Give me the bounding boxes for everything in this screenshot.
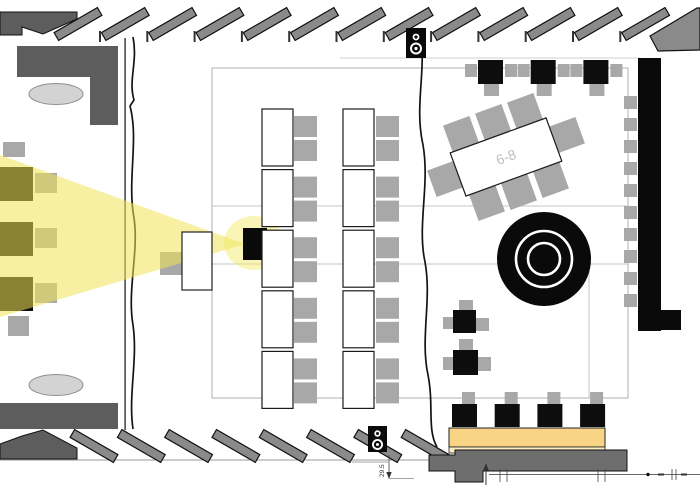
louver-post — [241, 31, 243, 42]
window-louver-top — [243, 8, 291, 41]
cocktail-chair-bottom[interactable] — [484, 84, 499, 96]
window-louver-top — [291, 8, 339, 41]
banquet-chair[interactable] — [294, 382, 317, 403]
banquet-chair[interactable] — [376, 116, 399, 137]
banquet-chair[interactable] — [376, 261, 399, 282]
dim-arrow-down — [386, 472, 391, 479]
banquet-table[interactable] — [343, 230, 374, 287]
cocktail-table[interactable] — [531, 60, 556, 84]
louver-post — [288, 31, 290, 42]
banquet-chair[interactable] — [294, 322, 317, 343]
cocktail-chair-right[interactable] — [558, 64, 570, 77]
louver-post — [525, 31, 527, 42]
banquet-table[interactable] — [343, 351, 374, 408]
banquet-table[interactable] — [262, 291, 293, 348]
banquet-table[interactable] — [343, 109, 374, 166]
banquet-table[interactable] — [262, 109, 293, 166]
lounge-table-bottom[interactable] — [29, 375, 83, 396]
banquet-table[interactable] — [262, 230, 293, 287]
wall-bottom-right — [429, 450, 627, 482]
cocktail-chair-left[interactable] — [570, 64, 582, 77]
window-louver-top — [527, 8, 575, 41]
banquet-chair[interactable] — [376, 382, 399, 403]
banquet-chair[interactable] — [376, 201, 399, 222]
banquet-chair[interactable] — [294, 261, 317, 282]
side-table-chair-right[interactable] — [476, 318, 489, 331]
window-louver-bottom — [212, 430, 260, 463]
louver-post — [477, 31, 479, 42]
banquet-chair[interactable] — [376, 298, 399, 319]
window-louver-bottom — [307, 430, 355, 463]
side-table[interactable] — [453, 310, 476, 333]
banquet-chair[interactable] — [294, 201, 317, 222]
bar-chair[interactable] — [624, 228, 637, 241]
cocktail-chair-left[interactable] — [518, 64, 530, 77]
banquet-chair[interactable] — [376, 237, 399, 258]
bar-back-chair[interactable] — [590, 392, 603, 404]
stage-chair[interactable] — [3, 142, 25, 157]
side-table-chair-right[interactable] — [478, 357, 491, 371]
speaker-woofer-dot — [414, 47, 417, 50]
window-louver-top — [432, 8, 480, 41]
cocktail-table[interactable] — [583, 60, 608, 84]
bar-chair[interactable] — [624, 294, 637, 307]
window-louver-bottom — [165, 430, 213, 463]
lounge-sofa-bottom[interactable] — [0, 403, 118, 429]
banquet-chair[interactable] — [376, 177, 399, 198]
louver-post — [572, 31, 574, 42]
bar-chair[interactable] — [624, 206, 637, 219]
window-louver-top — [149, 8, 197, 41]
window-louver-top — [480, 8, 528, 41]
bar-stool[interactable] — [495, 404, 520, 427]
cocktail-chair-left[interactable] — [465, 64, 477, 77]
floor-plan: 6-829.5 — [0, 0, 700, 500]
cocktail-chair-right[interactable] — [610, 64, 622, 77]
banquet-chair[interactable] — [294, 116, 317, 137]
bar-chair[interactable] — [624, 162, 637, 175]
louver-post — [194, 31, 196, 42]
window-louver-top — [196, 8, 244, 41]
banquet-chair[interactable] — [294, 140, 317, 161]
bar-chair[interactable] — [624, 184, 637, 197]
cocktail-chair-bottom[interactable] — [589, 84, 604, 96]
curtain-right[interactable] — [420, 33, 437, 447]
cocktail-chair-bottom[interactable] — [537, 84, 552, 96]
louver-post — [336, 31, 338, 42]
banquet-table[interactable] — [343, 291, 374, 348]
cocktail-chair-right[interactable] — [505, 64, 517, 77]
speaker-tweeter-dot — [376, 432, 379, 435]
side-table-chair-top[interactable] — [459, 339, 473, 350]
bar-stool[interactable] — [580, 404, 605, 427]
bar-stool[interactable] — [537, 404, 562, 427]
projector-table[interactable] — [182, 232, 212, 290]
banquet-chair[interactable] — [294, 237, 317, 258]
banquet-chair[interactable] — [376, 358, 399, 379]
banquet-chair[interactable] — [376, 322, 399, 343]
bar-chair[interactable] — [624, 118, 637, 131]
cocktail-table[interactable] — [478, 60, 503, 84]
banquet-chair[interactable] — [294, 298, 317, 319]
window-louver-top — [574, 8, 622, 41]
banquet-table[interactable] — [262, 351, 293, 408]
window-louver-bottom — [117, 430, 165, 463]
window-louver-top — [101, 8, 149, 41]
bar-chair[interactable] — [624, 250, 637, 263]
bar-chair[interactable] — [624, 96, 637, 109]
side-table-chair-left[interactable] — [443, 357, 453, 370]
bar-counter-bottom[interactable] — [449, 428, 605, 447]
banquet-table[interactable] — [343, 170, 374, 227]
bar-back-chair[interactable] — [462, 392, 475, 404]
lounge-table-top[interactable] — [29, 84, 83, 105]
side-table-chair-top[interactable] — [459, 300, 473, 311]
stage-chair[interactable] — [8, 316, 29, 336]
window-louver-bottom — [259, 430, 307, 463]
dim-point — [646, 473, 649, 476]
stage-dimension-label: 29.5 — [379, 464, 386, 477]
window-louver-top — [338, 8, 386, 41]
banquet-table[interactable] — [262, 170, 293, 227]
wall-segment-bottom-left — [0, 430, 77, 459]
side-table[interactable] — [453, 350, 478, 375]
banquet-chair[interactable] — [294, 358, 317, 379]
round-lounge-feature[interactable] — [497, 212, 591, 306]
bar-chair[interactable] — [624, 272, 637, 285]
louver-post — [430, 31, 432, 42]
bar-back-chair[interactable] — [547, 392, 560, 404]
speaker-woofer-dot — [376, 443, 379, 446]
bar-chair[interactable] — [624, 140, 637, 153]
louver-post — [99, 31, 101, 42]
banquet-chair[interactable] — [294, 177, 317, 198]
side-table-chair-left[interactable] — [443, 317, 453, 329]
bar-counter-right[interactable] — [638, 58, 661, 331]
bar-counter-right-foot — [661, 310, 681, 330]
louver-post — [146, 31, 148, 42]
louver-post — [383, 31, 385, 42]
floor-plan-canvas: 6-829.5 — [0, 0, 700, 500]
banquet-chair[interactable] — [376, 140, 399, 161]
speaker-tweeter-dot — [414, 35, 417, 38]
bar-back-chair[interactable] — [505, 392, 518, 404]
bar-stool[interactable] — [452, 404, 477, 427]
louver-post — [619, 31, 621, 42]
